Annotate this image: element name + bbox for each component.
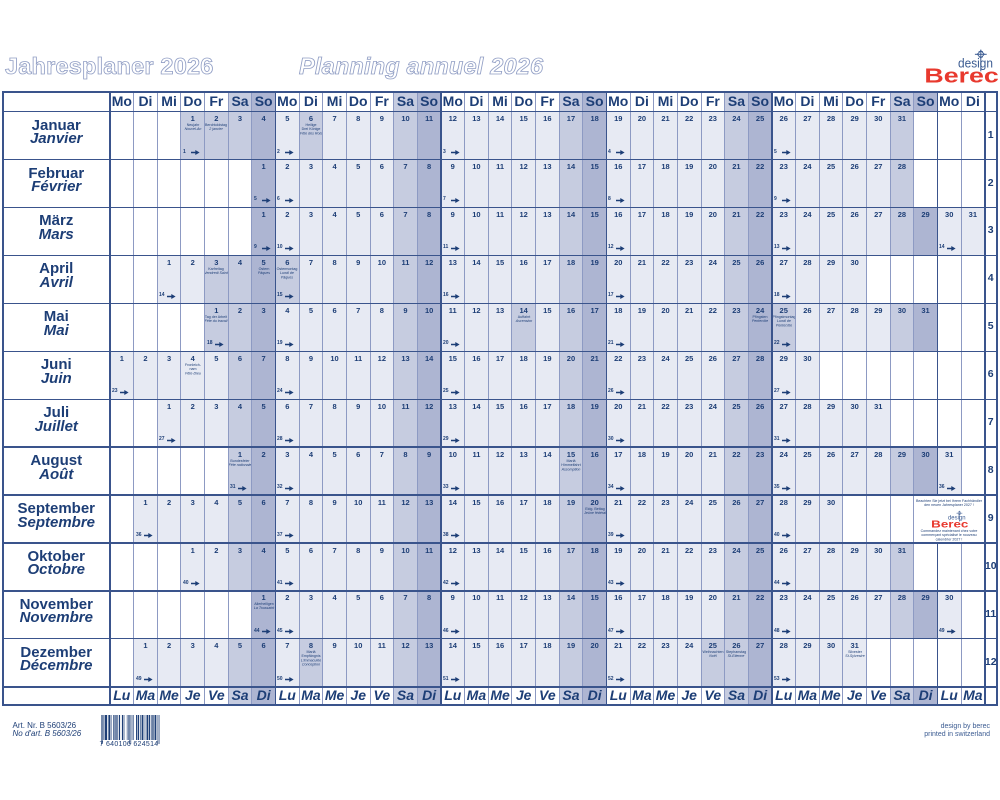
svg-text:Berec: Berec <box>924 65 998 86</box>
svg-text:Berec: Berec <box>931 519 969 529</box>
